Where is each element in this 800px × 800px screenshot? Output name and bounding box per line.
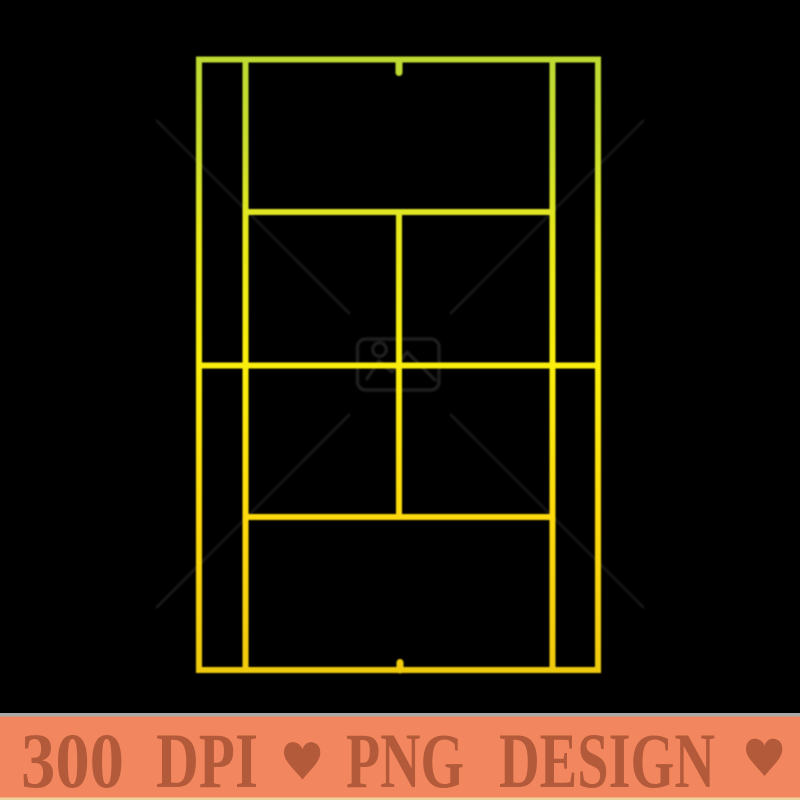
svg-text:PNG: PNG <box>346 717 464 800</box>
svg-text:300: 300 <box>21 717 124 800</box>
svg-text:DPI: DPI <box>156 717 258 800</box>
svg-text:DESIGN: DESIGN <box>499 717 715 800</box>
